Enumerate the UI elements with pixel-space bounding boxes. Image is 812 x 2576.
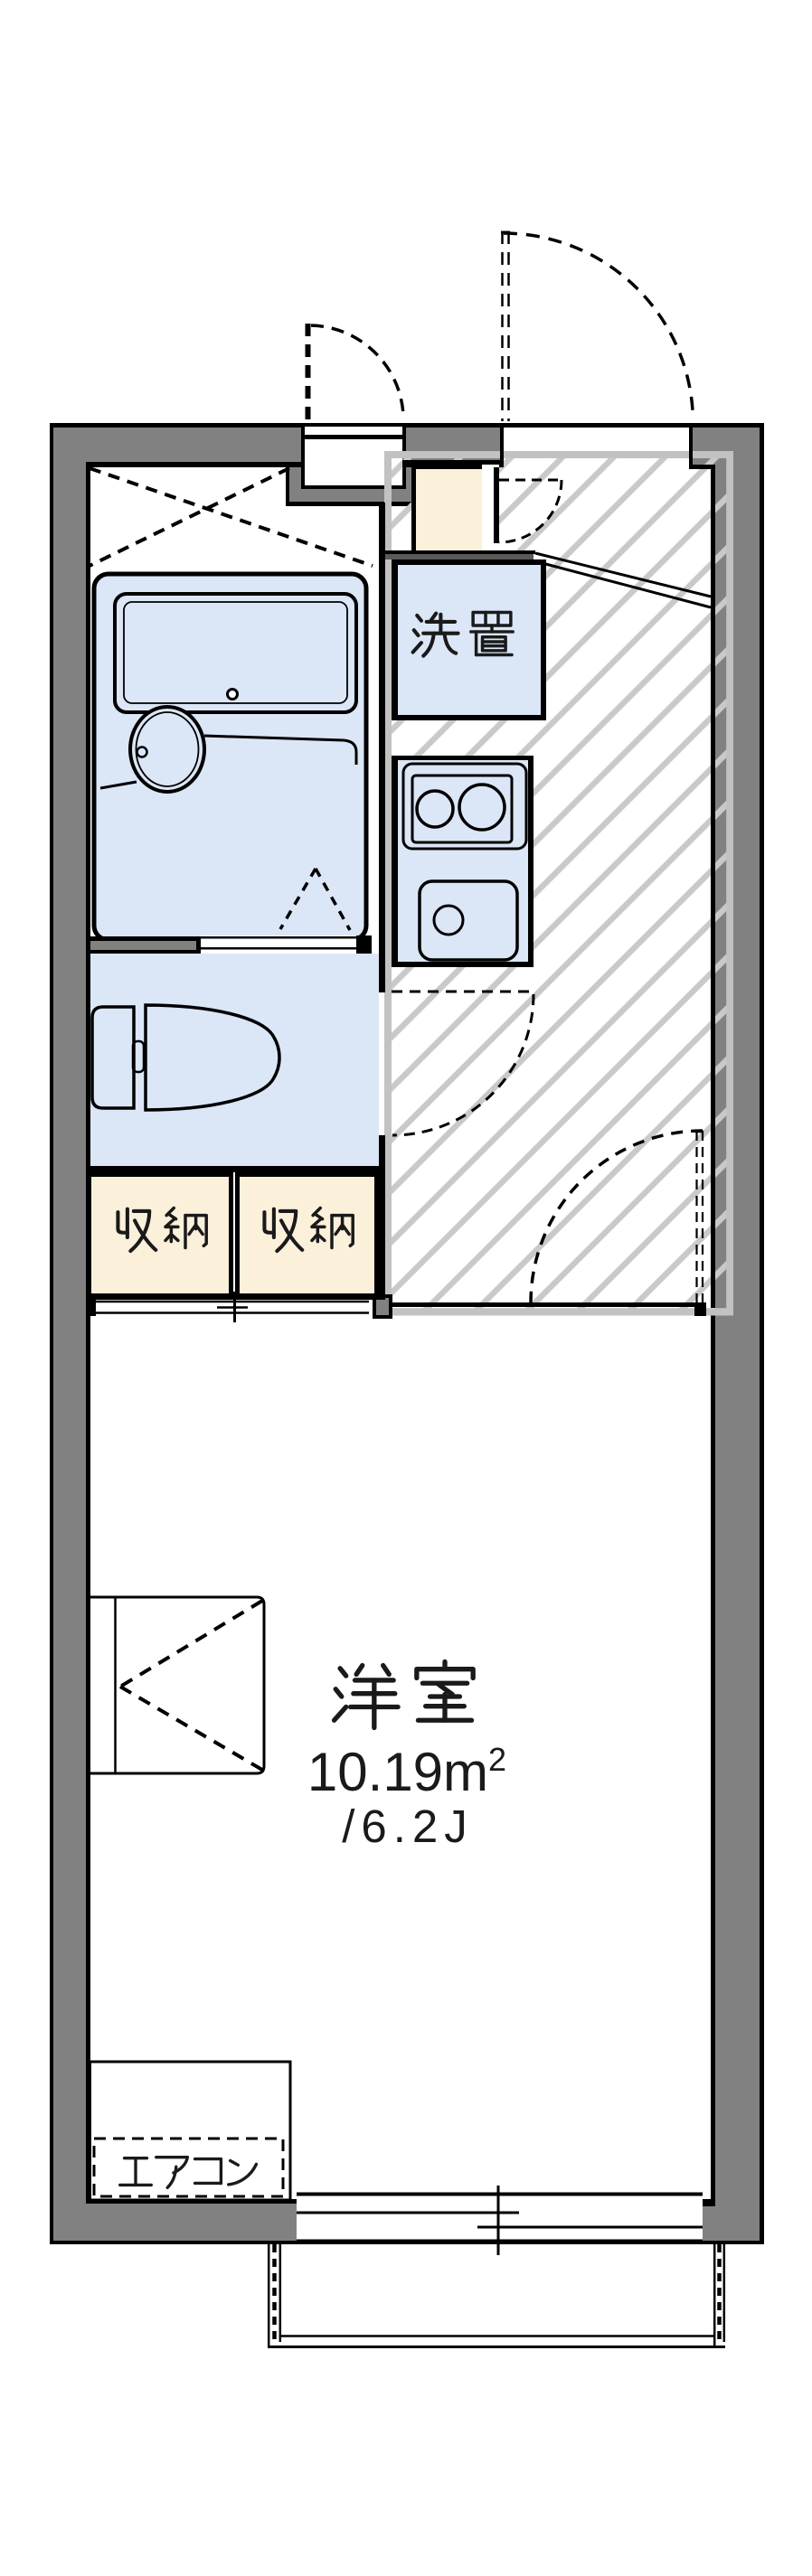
svg-text:10.19m2: 10.19m2 [307, 1741, 506, 1802]
svg-text:/6.2J: /6.2J [342, 1800, 474, 1852]
